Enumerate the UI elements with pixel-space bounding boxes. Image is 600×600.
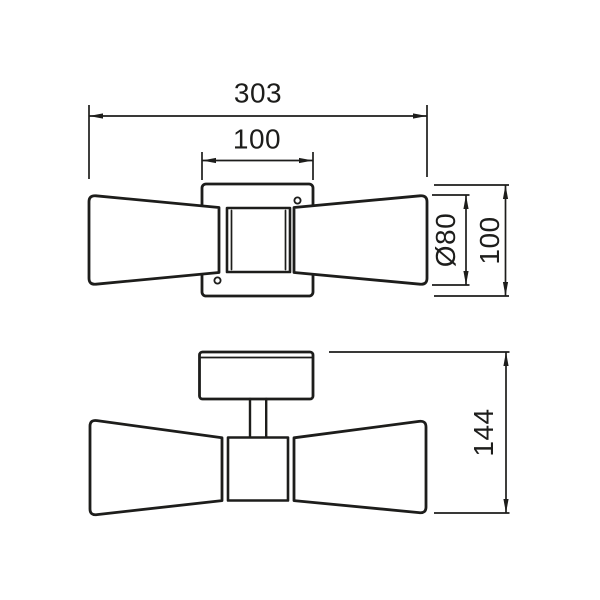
left-shade-side xyxy=(90,420,222,514)
right-shade-side xyxy=(294,421,426,512)
dimension-shade-diameter: Ø80 xyxy=(430,195,470,285)
dimension-label-shade-diameter: Ø80 xyxy=(430,213,461,267)
side-view xyxy=(90,352,426,515)
lamp-body-front xyxy=(227,208,290,272)
screw-hole-bottom-left xyxy=(214,277,220,283)
dimension-label-overall-depth: 144 xyxy=(468,408,499,456)
dimension-label-backplate-height: 100 xyxy=(474,216,505,264)
screw-hole-top-right xyxy=(294,197,300,203)
technical-drawing: 303 100 Ø80 100 144 xyxy=(0,0,600,600)
lamp-body-side xyxy=(228,438,288,501)
dimension-backplate-width: 100 xyxy=(202,124,313,181)
dimension-label-backplate-width: 100 xyxy=(233,124,281,155)
backplate-side xyxy=(200,352,314,399)
right-shade-front xyxy=(294,196,427,285)
front-view xyxy=(89,184,427,296)
left-shade-front xyxy=(89,196,219,285)
dimension-label-overall-width: 303 xyxy=(234,78,282,109)
